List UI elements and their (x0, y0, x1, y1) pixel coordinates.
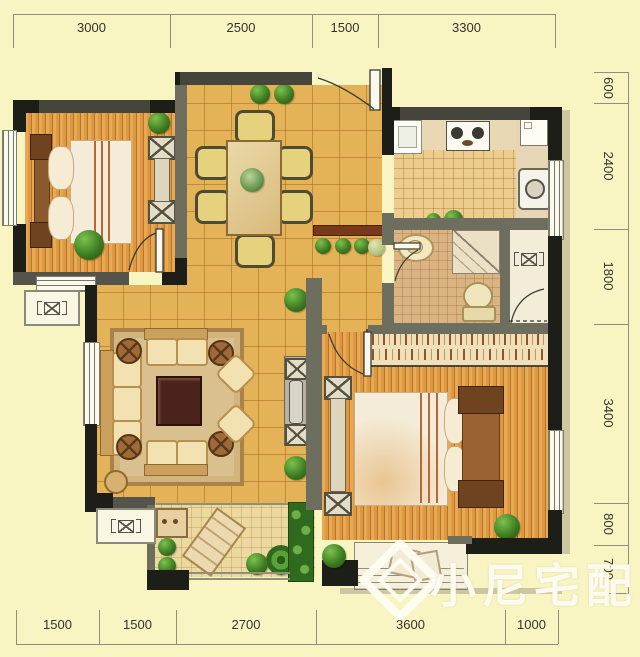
master-door-leaf (364, 332, 371, 376)
bathroom-door-arc (395, 250, 418, 281)
bathroom-door-leaf (394, 243, 420, 249)
corridor-door-arc (511, 289, 544, 323)
watermark: 小尼宅配 (358, 536, 638, 616)
bedroom1-door-arc (129, 233, 156, 270)
master-door-arc (329, 334, 363, 374)
bedroom1-door-leaf (156, 229, 163, 272)
floor-plan-page: { "dimensions": { "top": ["3000", "2500"… (0, 0, 640, 657)
entry-door-leaf (370, 70, 380, 110)
entry-door-arc (318, 78, 374, 109)
watermark-text: 小尼宅配 (430, 550, 638, 616)
